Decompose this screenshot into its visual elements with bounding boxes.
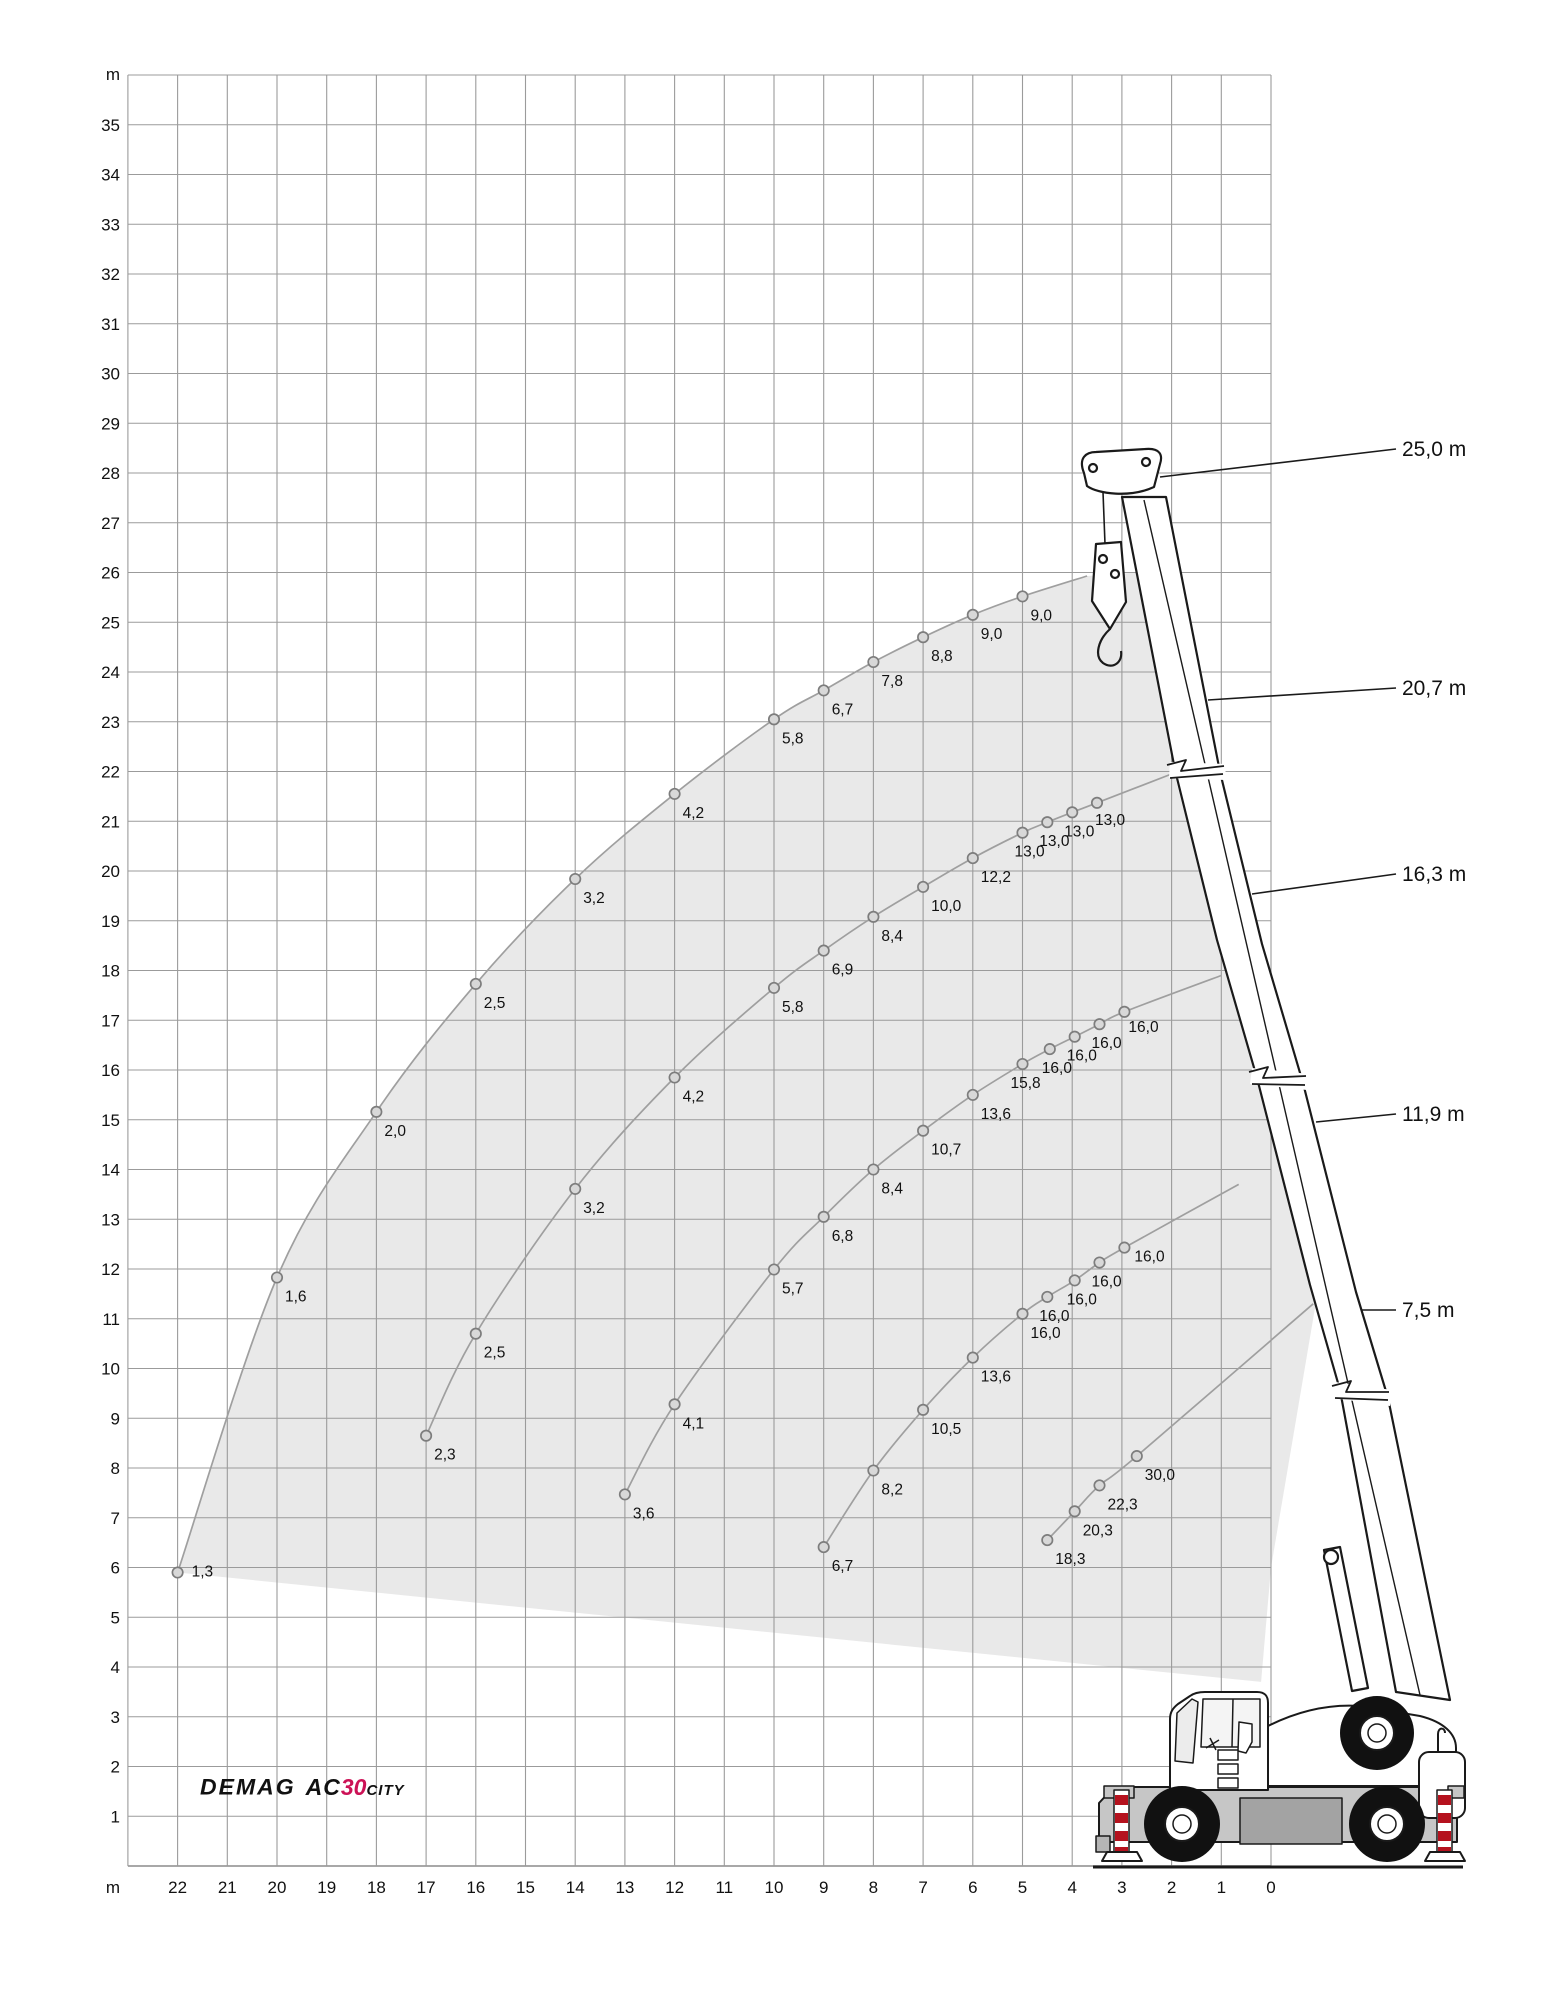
capacity-point [1045,1044,1055,1054]
load-value-label: 13,6 [981,1369,1011,1386]
y-tick-label: 13 [101,1210,120,1229]
x-axis-unit: m [106,1878,120,1897]
capacity-point [968,1352,978,1362]
y-tick-label: 24 [101,663,120,682]
load-value-label: 16,0 [1067,1291,1098,1308]
wheel-rear [1349,1786,1425,1862]
y-tick-label: 6 [111,1559,120,1578]
hoist-rope [1103,492,1105,544]
capacity-point [1132,1451,1142,1461]
cab-window-divider [1232,1699,1233,1747]
load-value-label: 5,8 [782,999,804,1016]
load-value-label: 3,6 [633,1505,655,1522]
boom-length-leader [1208,688,1396,700]
hook-block-pin2 [1111,570,1119,578]
capacity-point [1070,1275,1080,1285]
capacity-point [1017,591,1027,601]
capacity-point [868,1465,878,1475]
y-tick-label: 1 [111,1807,120,1826]
y-tick-label: 25 [101,613,120,632]
x-tick-label: 1 [1217,1878,1226,1897]
y-tick-label: 27 [101,514,120,533]
capacity-point [1017,828,1027,838]
y-tick-label: 16 [101,1061,120,1080]
y-tick-label: 10 [101,1360,120,1379]
x-tick-label: 6 [968,1878,977,1897]
load-value-label: 2,0 [384,1123,406,1140]
capacity-point [272,1272,282,1282]
head-pin [1142,458,1150,466]
capacity-point [570,1184,580,1194]
y-tick-label: 28 [101,464,120,483]
load-value-label: 13,0 [1095,812,1126,829]
x-tick-label: 17 [417,1878,436,1897]
capacity-point [1070,1032,1080,1042]
y-tick-label: 17 [101,1011,120,1030]
capacity-point [1092,798,1102,808]
load-value-label: 16,0 [1092,1035,1123,1052]
y-tick-label: 31 [101,315,120,334]
y-tick-label: 21 [101,812,120,831]
capacity-point [1042,1292,1052,1302]
load-value-label: 20,3 [1083,1522,1113,1539]
y-tick-label: 14 [101,1161,120,1180]
capacity-point [819,685,829,695]
capacity-point [769,983,779,993]
load-value-label: 6,9 [832,962,854,979]
capacity-point [1042,817,1052,827]
load-value-label: 22,3 [1108,1496,1138,1513]
capacity-point [769,1264,779,1274]
load-value-label: 9,0 [981,626,1003,643]
x-tick-label: 8 [869,1878,878,1897]
capacity-point [1067,807,1077,817]
load-value-label: 4,2 [683,1089,705,1106]
capacity-point [1017,1059,1027,1069]
y-tick-label: 26 [101,564,120,583]
load-value-label: 1,6 [285,1289,307,1306]
capacity-point [669,1399,679,1409]
x-tick-label: 10 [765,1878,784,1897]
y-tick-label: 8 [111,1459,120,1478]
load-value-label: 18,3 [1055,1551,1085,1568]
load-value-label: 8,4 [881,928,903,945]
load-value-label: 3,2 [583,890,605,907]
x-tick-label: 5 [1018,1878,1027,1897]
capacity-point [968,1090,978,1100]
load-value-label: 13,6 [981,1106,1011,1123]
capacity-point [918,1405,928,1415]
y-tick-label: 19 [101,912,120,931]
y-tick-label: 2 [111,1758,120,1777]
x-tick-label: 9 [819,1878,828,1897]
logo-brand: DEMAG [200,1775,296,1801]
load-value-label: 6,7 [832,701,854,718]
capacity-point [669,789,679,799]
x-tick-label: 16 [466,1878,485,1897]
x-tick-label: 22 [168,1878,187,1897]
load-value-label: 7,8 [881,673,903,690]
capacity-point [918,632,928,642]
capacity-point [1119,1007,1129,1017]
wheel-raised [1340,1696,1414,1770]
x-tick-label: 20 [268,1878,287,1897]
x-tick-label: 21 [218,1878,237,1897]
x-tick-label: 14 [566,1878,585,1897]
x-tick-label: 12 [665,1878,684,1897]
cylinder-pin [1324,1550,1338,1564]
capacity-point [819,945,829,955]
load-value-label: 16,0 [1092,1274,1123,1291]
load-value-label: 9,0 [1031,607,1053,624]
working-range-chart: 1,31,62,02,53,24,25,86,77,88,89,09,02,32… [0,0,1568,2013]
hook-block-pin [1099,555,1107,563]
capacity-point [1094,1257,1104,1267]
load-value-label: 16,0 [1031,1325,1062,1342]
y-tick-label: 29 [101,414,120,433]
head-sheave-pin [1089,464,1097,472]
carrier-front-box [1096,1836,1110,1852]
load-value-label: 8,8 [931,648,953,665]
capacity-point [918,1126,928,1136]
demag-logo: DEMAG AC 30 CITY [200,1774,405,1801]
load-value-label: 4,1 [683,1415,705,1432]
x-tick-label: 19 [317,1878,336,1897]
x-tick-label: 7 [918,1878,927,1897]
load-value-label: 8,2 [881,1482,903,1499]
y-tick-label: 33 [101,215,120,234]
load-value-label: 16,0 [1134,1249,1165,1266]
y-tick-label: 23 [101,713,120,732]
capacity-point [968,853,978,863]
capacity-point [819,1542,829,1552]
x-tick-label: 2 [1167,1878,1176,1897]
capacity-point [570,874,580,884]
load-value-label: 5,7 [782,1281,804,1298]
boom-length-label: 11,9 m [1402,1103,1465,1126]
y-tick-label: 20 [101,862,120,881]
logo-model-number: 30 [341,1774,367,1801]
load-value-label: 2,3 [434,1447,456,1464]
wheel-front [1144,1786,1220,1862]
load-value-label: 3,2 [583,1200,605,1217]
capacity-point [1094,1019,1104,1029]
capacity-point [620,1489,630,1499]
boom-length-leader [1252,874,1396,894]
y-tick-label: 18 [101,962,120,981]
load-value-label: 5,8 [782,730,804,747]
load-value-label: 1,3 [192,1564,214,1581]
capacity-point [1017,1309,1027,1319]
y-tick-label: 22 [101,763,120,782]
load-value-label: 2,5 [484,995,506,1012]
capacity-point [669,1072,679,1082]
load-value-label: 13,0 [1064,823,1095,840]
capacity-point [1042,1535,1052,1545]
logo-model-prefix: AC [306,1774,341,1801]
y-tick-label: 34 [101,166,120,185]
y-tick-label: 7 [111,1509,120,1528]
boom-length-label: 20,7 m [1402,677,1466,700]
y-tick-label: 4 [111,1658,120,1677]
load-chart-page: 1,31,62,02,53,24,25,86,77,88,89,09,02,32… [0,0,1568,2013]
load-value-label: 12,2 [981,869,1011,886]
load-value-label: 16,0 [1128,1019,1159,1036]
load-value-label: 10,7 [931,1142,961,1159]
load-value-label: 6,8 [832,1228,854,1245]
capacity-point [1094,1480,1104,1490]
load-value-label: 6,7 [832,1558,854,1575]
capacity-point [421,1431,431,1441]
y-tick-label: 3 [111,1708,120,1727]
load-value-label: 10,5 [931,1421,961,1438]
capacity-point [172,1567,182,1577]
x-tick-label: 0 [1266,1878,1275,1897]
boom-length-leader [1316,1114,1396,1122]
load-value-label: 4,2 [683,805,705,822]
x-tick-label: 4 [1067,1878,1076,1897]
boom-length-leader [1160,449,1396,477]
capacity-point [868,1164,878,1174]
capacity-point [1119,1242,1129,1252]
capacity-point [471,1329,481,1339]
capacity-point [371,1107,381,1117]
luffing-cylinder [1324,1547,1368,1691]
load-value-label: 15,8 [1011,1075,1041,1092]
x-tick-label: 18 [367,1878,386,1897]
x-tick-label: 3 [1117,1878,1126,1897]
logo-model-suffix: CITY [366,1782,404,1799]
load-value-label: 2,5 [484,1345,506,1362]
x-tick-label: 13 [615,1878,634,1897]
load-value-label: 10,0 [931,898,962,915]
y-tick-label: 12 [101,1260,120,1279]
boom-length-label: 25,0 m [1402,438,1466,461]
load-value-label: 8,4 [881,1181,903,1198]
load-value-label: 16,0 [1039,1308,1070,1325]
capacity-point [769,714,779,724]
y-tick-label: 35 [101,116,120,135]
y-tick-label: 9 [111,1409,120,1428]
capacity-point [918,882,928,892]
carrier-mid-panel [1240,1798,1342,1844]
load-value-label: 30,0 [1145,1467,1176,1484]
y-axis-unit: m [106,65,120,84]
y-tick-label: 5 [111,1608,120,1627]
y-tick-label: 30 [101,365,120,384]
capacity-point [868,657,878,667]
x-tick-label: 11 [715,1878,733,1897]
crane-illustration [1093,1692,1465,1867]
capacity-point [1070,1506,1080,1516]
x-tick-label: 15 [516,1878,535,1897]
capacity-point [968,610,978,620]
boom-length-label: 16,3 m [1402,863,1466,886]
boom-length-label: 7,5 m [1402,1299,1455,1322]
y-tick-label: 32 [101,265,120,284]
y-tick-label: 15 [101,1111,120,1130]
cab-vents [1218,1750,1238,1788]
capacity-point [471,979,481,989]
capacity-point [819,1212,829,1222]
y-tick-label: 11 [102,1310,120,1329]
capacity-point [868,912,878,922]
